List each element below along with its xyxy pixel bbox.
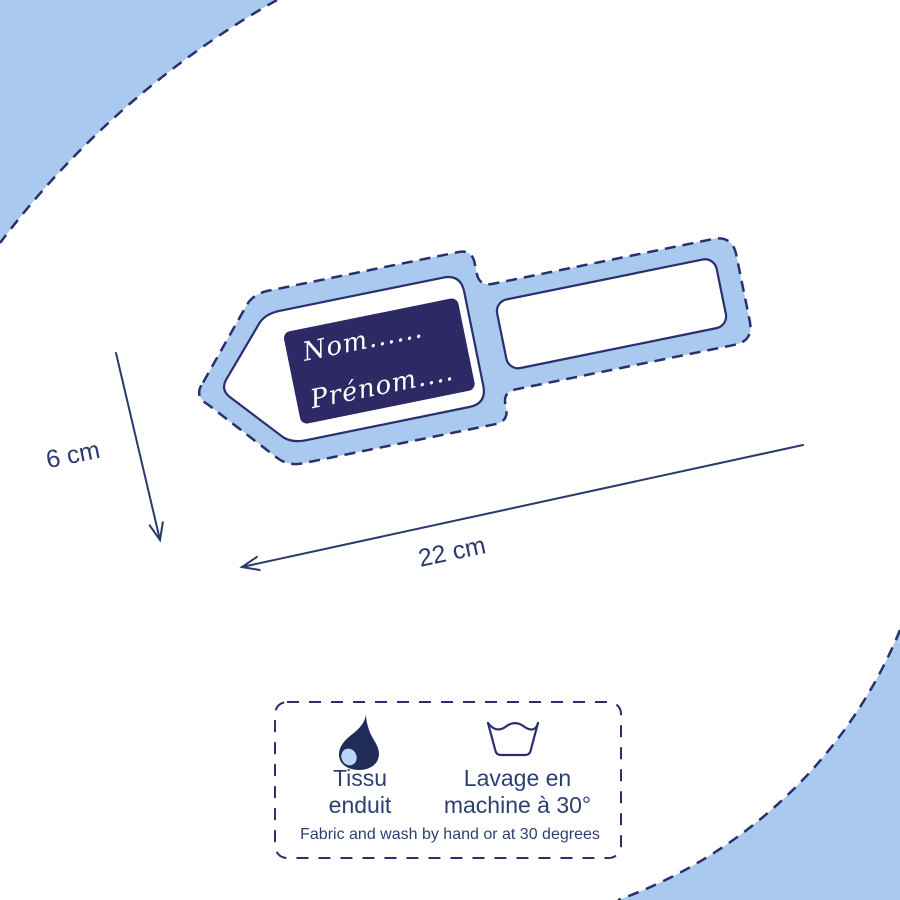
label-diagram-poster: Nom...... Prénom.... 6 cm 22 cm bbox=[0, 0, 900, 900]
fabric-label-line1: Tissu bbox=[295, 765, 425, 792]
top-left-corner-shape bbox=[0, 0, 277, 243]
height-dimension-line bbox=[116, 353, 160, 540]
wash-label-line1: Lavage en bbox=[425, 765, 610, 792]
fabric-label: Tissu enduit bbox=[295, 765, 425, 819]
height-label: 6 cm bbox=[44, 436, 103, 474]
wash-label: Lavage en machine à 30° bbox=[425, 765, 610, 819]
wash-label-line2: machine à 30° bbox=[425, 792, 610, 819]
width-dimension bbox=[242, 445, 803, 570]
height-dimension bbox=[116, 353, 163, 540]
care-footnote: Fabric and wash by hand or at 30 degrees bbox=[283, 825, 617, 844]
width-dimension-line bbox=[242, 445, 803, 567]
fabric-label-line2: enduit bbox=[295, 792, 425, 819]
width-label: 22 cm bbox=[416, 531, 488, 573]
bottom-right-corner-shape bbox=[618, 630, 900, 900]
name-tag: Nom...... Prénom.... bbox=[182, 198, 760, 481]
